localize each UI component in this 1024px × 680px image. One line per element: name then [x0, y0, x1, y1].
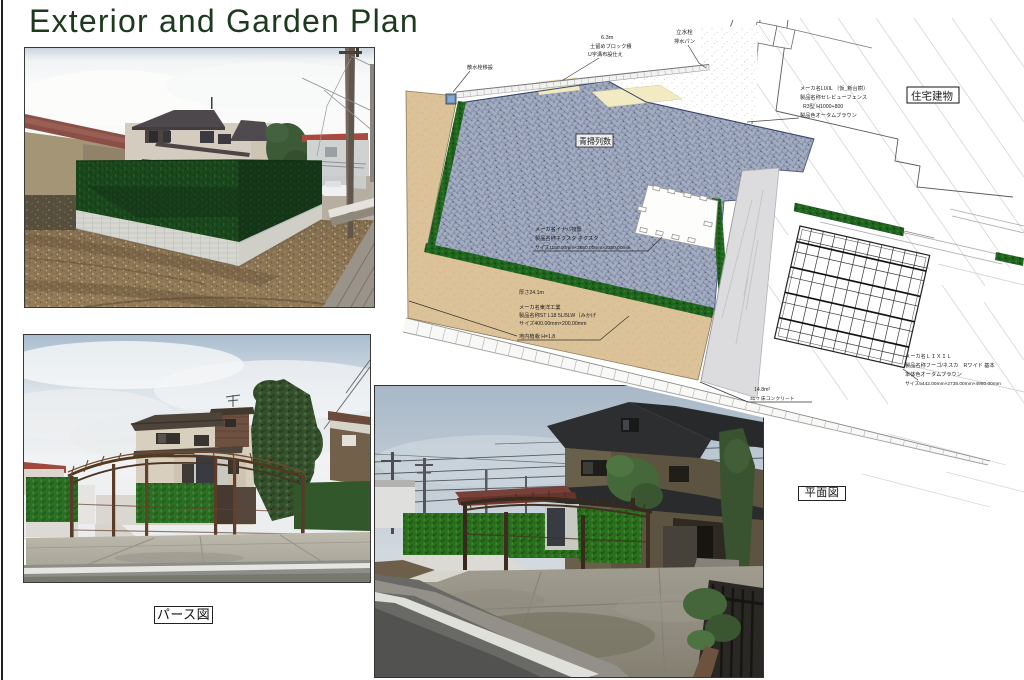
svg-text:14.8m²: 14.8m²: [754, 387, 770, 393]
svg-text:住宅建物: 住宅建物: [911, 90, 953, 103]
svg-text:サイズ400.00mm×200.00mm: サイズ400.00mm×200.00mm: [519, 319, 586, 327]
svg-text:メーカ名ＬＩＸＩＬ: メーカ名ＬＩＸＩＬ: [905, 352, 952, 360]
svg-text:製品名称フーゴ/ネスカ Rワイド 基本: 製品名称フーゴ/ネスカ Rワイド 基本: [905, 361, 995, 369]
svg-text:立水栓: 立水栓: [676, 28, 693, 36]
svg-text:6.3m: 6.3m: [601, 35, 614, 41]
svg-text:サイズ1150.00mm×3050.00mm×2350.00: サイズ1150.00mm×3050.00mm×2350.00mm: [535, 244, 631, 251]
svg-text:R3型 H1000+800: R3型 H1000+800: [803, 102, 843, 110]
svg-text:青掃列数: 青掃列数: [579, 136, 611, 146]
svg-text:メーカ名東洋工業: メーカ名東洋工業: [519, 303, 561, 311]
svg-text:散水栓移設: 散水栓移設: [467, 63, 493, 71]
svg-text:排水パン: 排水パン: [674, 37, 695, 45]
svg-text:土留めブロック積: 土留めブロック積: [590, 42, 632, 50]
svg-text:厚さ24.1m: 厚さ24.1m: [519, 289, 544, 296]
svg-text:製品名称セレビューフェンス: 製品名称セレビューフェンス: [800, 93, 867, 101]
svg-text:製品色オータムブラウン: 製品色オータムブラウン: [800, 111, 857, 119]
svg-text:製品名称ネクスタ ネクスタ: 製品名称ネクスタ ネクスタ: [535, 234, 598, 242]
svg-text:U字溝布設仕え: U字溝布設仕え: [588, 50, 623, 58]
svg-text:メーカ名イナバ物置: メーカ名イナバ物置: [535, 225, 582, 233]
svg-text:31·7 床コンクリート: 31·7 床コンクリート: [750, 395, 795, 402]
svg-text:製品名称ST L18 5L/5LW（みかげ: 製品名称ST L18 5L/5LW（みかげ: [519, 311, 597, 319]
svg-text:サイズ5442.00mm×2738.00mm×4980.00: サイズ5442.00mm×2738.00mm×4980.00mm: [905, 380, 1001, 387]
svg-text:地内植栽 H=1.8: 地内植栽 H=1.8: [519, 332, 555, 340]
svg-text:メーカ名LIXIL 〔仮_新台樹〕: メーカ名LIXIL 〔仮_新台樹〕: [800, 84, 868, 92]
